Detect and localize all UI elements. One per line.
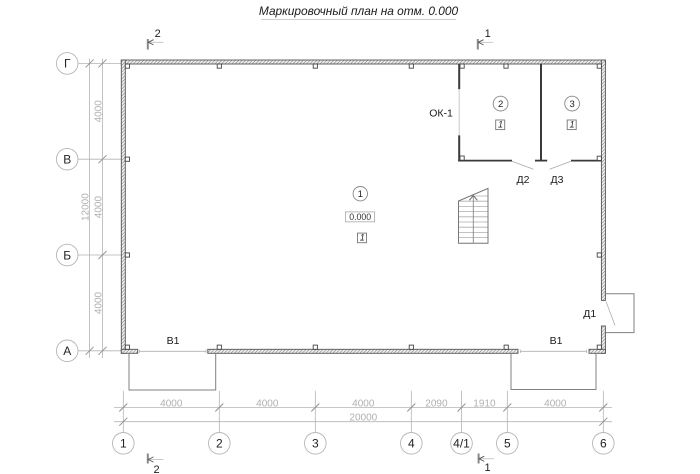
svg-text:12000: 12000 — [80, 193, 91, 221]
svg-text:В1: В1 — [550, 335, 563, 347]
svg-text:4000: 4000 — [93, 291, 104, 314]
svg-text:4/1: 4/1 — [453, 437, 470, 451]
svg-text:6: 6 — [600, 437, 607, 451]
svg-text:4000: 4000 — [544, 398, 567, 409]
svg-text:1: 1 — [569, 120, 574, 130]
svg-text:2090: 2090 — [425, 398, 448, 409]
svg-text:В1: В1 — [167, 335, 180, 347]
svg-text:4000: 4000 — [256, 398, 279, 409]
svg-text:2: 2 — [154, 464, 160, 474]
svg-text:20000: 20000 — [349, 413, 377, 424]
svg-text:Д3: Д3 — [551, 174, 564, 186]
svg-text:2: 2 — [216, 437, 223, 451]
svg-text:1: 1 — [358, 189, 363, 200]
svg-text:В: В — [63, 153, 71, 167]
svg-text:1910: 1910 — [473, 398, 496, 409]
svg-text:1: 1 — [485, 28, 491, 40]
svg-text:3: 3 — [569, 99, 574, 110]
svg-text:1: 1 — [360, 233, 365, 243]
svg-text:4000: 4000 — [93, 196, 104, 219]
svg-text:3: 3 — [312, 437, 319, 451]
svg-text:1: 1 — [498, 120, 503, 130]
svg-text:1: 1 — [120, 437, 127, 451]
svg-text:Д2: Д2 — [517, 174, 530, 186]
svg-text:Б: Б — [63, 248, 71, 262]
svg-text:4000: 4000 — [160, 398, 183, 409]
svg-text:0.000: 0.000 — [349, 212, 371, 222]
svg-text:Маркировочный план на отм. 0.0: Маркировочный план на отм. 0.000 — [259, 4, 459, 18]
svg-text:2: 2 — [155, 28, 161, 40]
svg-text:4000: 4000 — [93, 100, 104, 123]
svg-text:4: 4 — [408, 437, 415, 451]
svg-text:2: 2 — [498, 99, 503, 110]
svg-text:Д1: Д1 — [583, 308, 596, 320]
svg-text:4000: 4000 — [352, 398, 375, 409]
svg-text:1: 1 — [484, 462, 490, 474]
svg-text:А: А — [63, 344, 71, 358]
svg-text:Г: Г — [64, 57, 71, 71]
svg-text:5: 5 — [504, 437, 511, 451]
svg-text:ОК-1: ОК-1 — [429, 107, 453, 119]
